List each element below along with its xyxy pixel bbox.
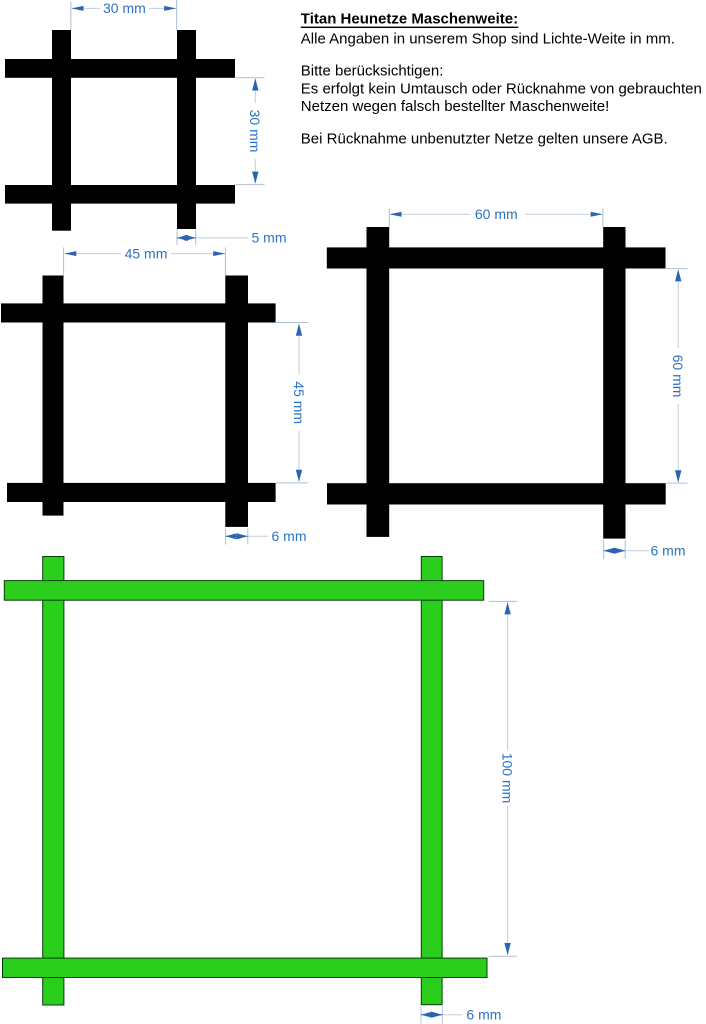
svg-text:60 mm: 60 mm — [670, 355, 686, 398]
svg-text:30 mm: 30 mm — [247, 110, 263, 153]
svg-text:6 mm: 6 mm — [272, 528, 307, 544]
svg-text:45 mm: 45 mm — [125, 245, 168, 261]
svg-text:6 mm: 6 mm — [651, 542, 686, 558]
svg-text:Netzen wegen falsch bestellter: Netzen wegen falsch bestellter Maschenwe… — [301, 98, 610, 115]
svg-text:Alle Angaben in unserem Shop s: Alle Angaben in unserem Shop sind Lichte… — [301, 30, 675, 47]
svg-text:Es erfolgt kein Umtausch oder: Es erfolgt kein Umtausch oder Rücknahme … — [301, 80, 702, 97]
svg-text:Titan Heunetze Maschenweite:: Titan Heunetze Maschenweite: — [301, 11, 518, 28]
svg-text:60 mm: 60 mm — [475, 206, 518, 222]
svg-text:Bei Rücknahme unbenutzter Netz: Bei Rücknahme unbenutzter Netze gelten u… — [301, 131, 668, 148]
svg-text:30 mm: 30 mm — [103, 0, 146, 16]
svg-text:5 mm: 5 mm — [252, 230, 287, 246]
svg-text:45 mm: 45 mm — [291, 381, 307, 424]
svg-text:Bitte berücksichtigen:: Bitte berücksichtigen: — [301, 63, 444, 80]
svg-text:6 mm: 6 mm — [466, 1006, 501, 1022]
svg-text:100 mm: 100 mm — [499, 753, 515, 804]
